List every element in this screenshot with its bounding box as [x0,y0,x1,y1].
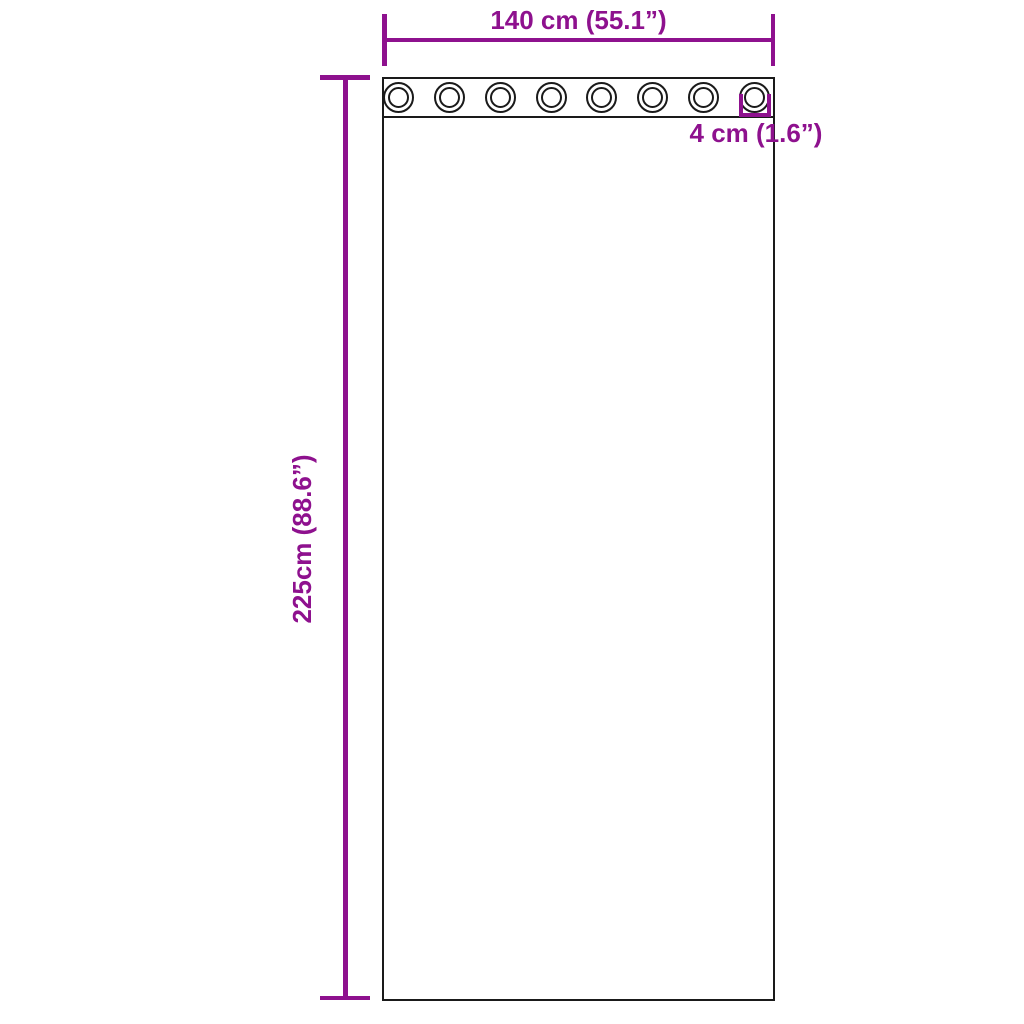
grommet-hole [693,87,714,108]
curtain-panel [382,77,775,1001]
grommet [383,82,414,113]
grommet-hole [541,87,562,108]
grommet-hole [744,87,765,108]
grommet [434,82,465,113]
width-dimension-line [382,38,775,43]
grommet [688,82,719,113]
height-dimension-tick-bottom [320,996,370,1001]
height-dimension-line [343,77,348,1000]
grommet-hole [591,87,612,108]
grommet-hole [439,87,460,108]
grommet [536,82,567,113]
grommet-hole [388,87,409,108]
grommet [739,82,770,113]
grommet [637,82,668,113]
grommet-row [383,81,770,113]
dimension-diagram: 140 cm (55.1”) 225cm (88.6”) 4 cm (1.6”) [0,0,1024,1024]
grommet-diameter-label: 4 cm (1.6”) [656,119,856,149]
grommet [586,82,617,113]
grommet-hole [490,87,511,108]
grommet [485,82,516,113]
height-dimension-tick-top [320,75,370,80]
height-dimension-label: 225cm (88.6”) [288,454,318,623]
width-dimension-label: 140 cm (55.1”) [382,6,775,36]
grommet-hole [642,87,663,108]
grommet-diameter-line [739,113,771,117]
